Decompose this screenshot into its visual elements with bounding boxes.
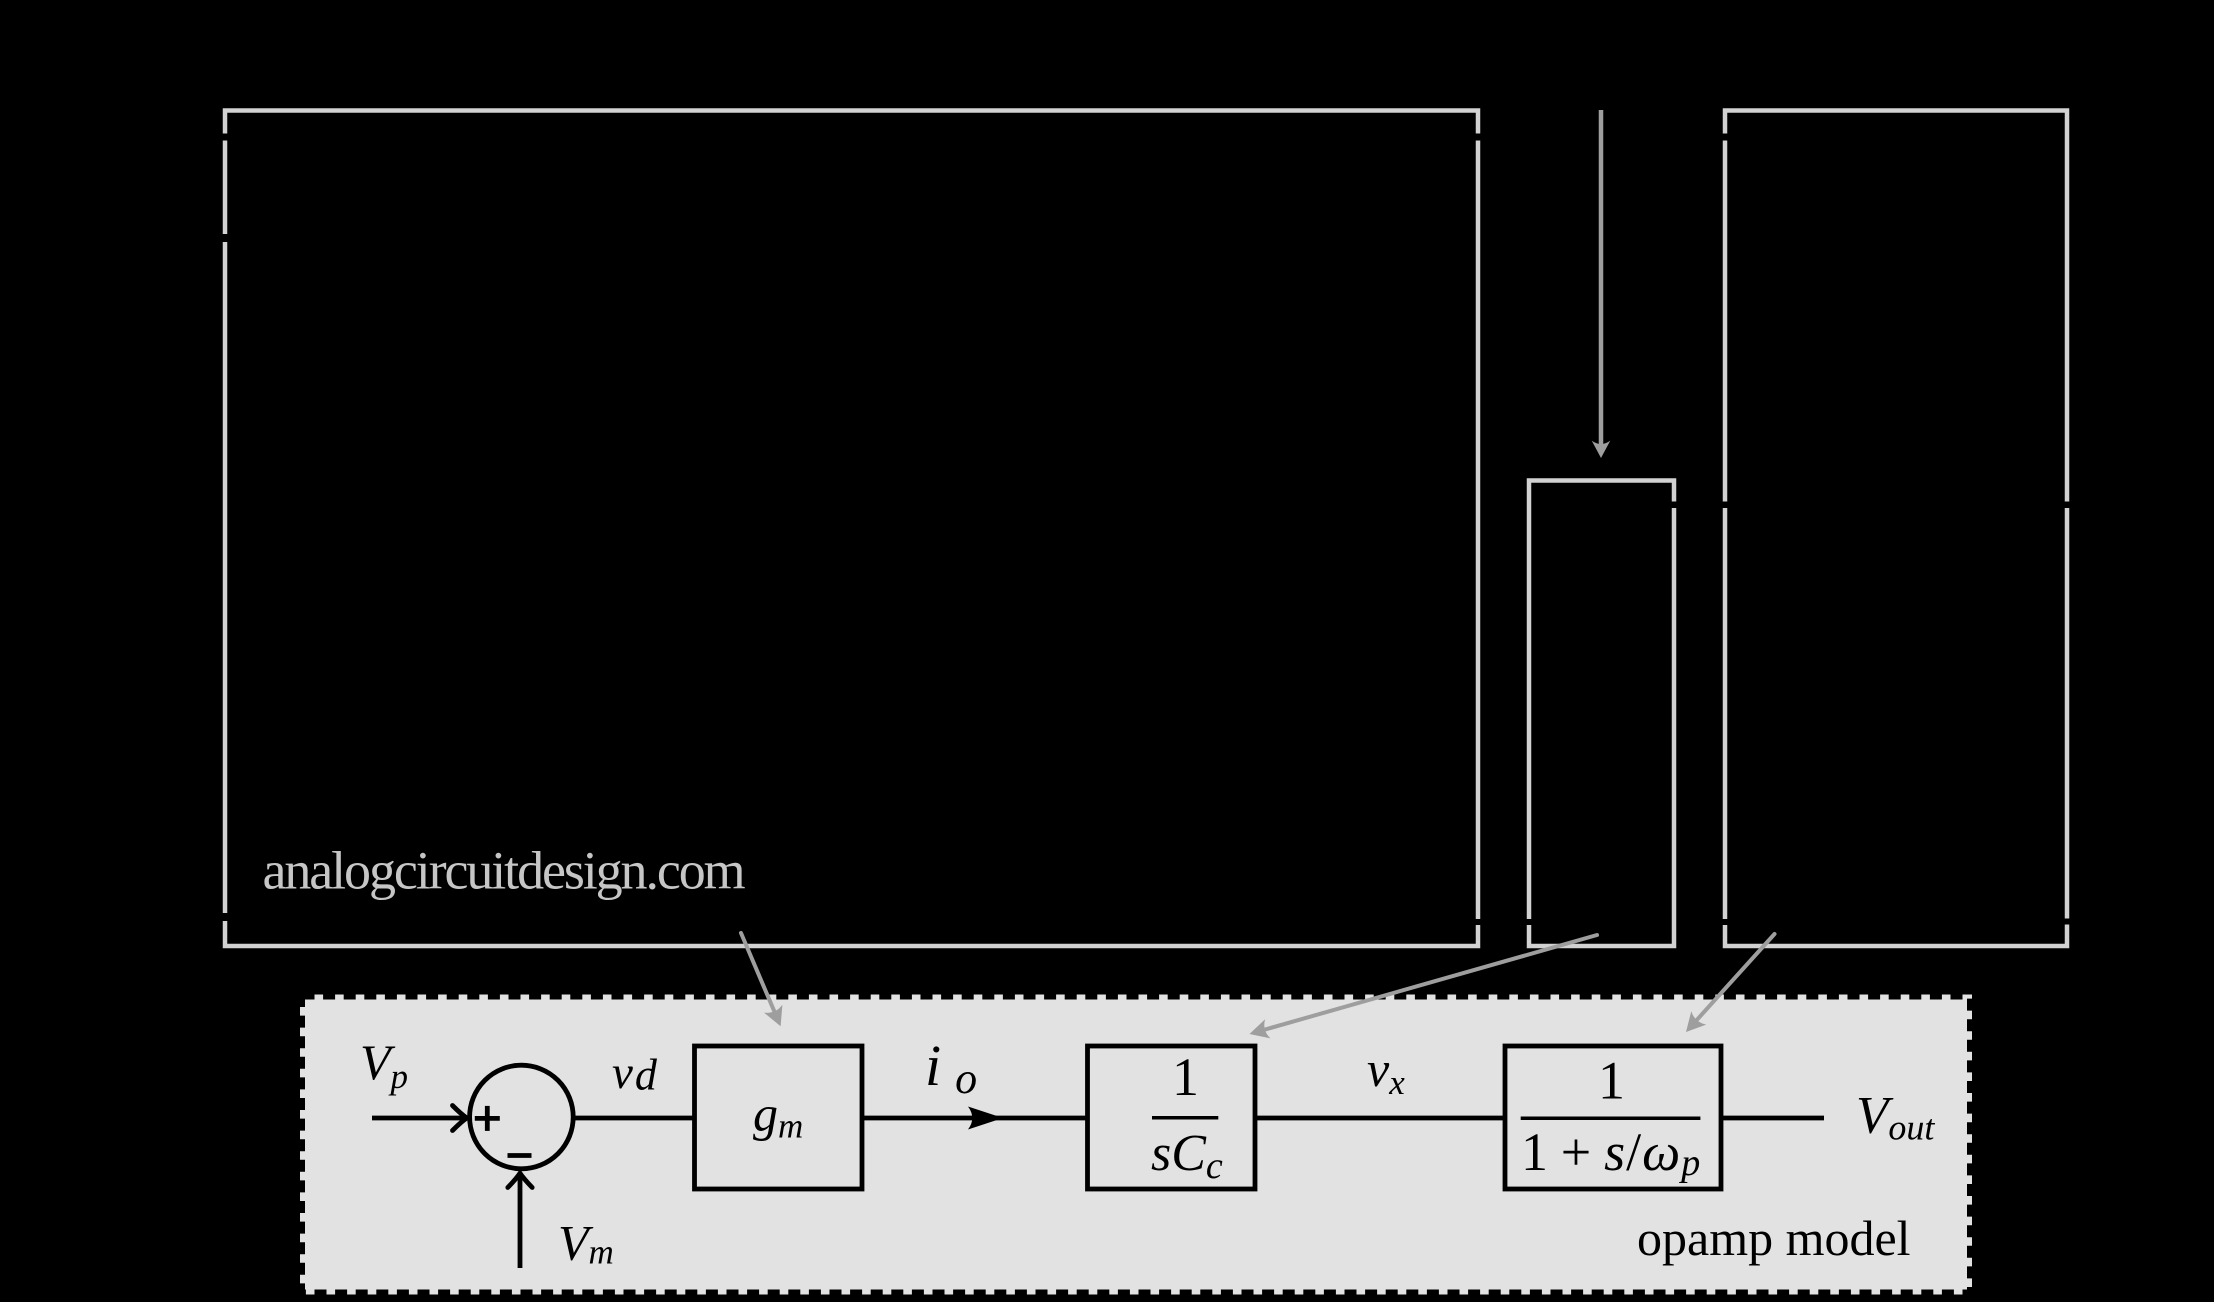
- svg-text:1: 1: [1172, 1047, 1199, 1107]
- svg-text:opamp model: opamp model: [1637, 1210, 1911, 1266]
- svg-text:vd: vd: [612, 1047, 658, 1100]
- svg-text:analogcircuitdesign.com: analogcircuitdesign.com: [263, 841, 746, 901]
- svg-text:1 + s/ωp: 1 + s/ωp: [1521, 1122, 1701, 1184]
- svg-text:1: 1: [1598, 1050, 1625, 1110]
